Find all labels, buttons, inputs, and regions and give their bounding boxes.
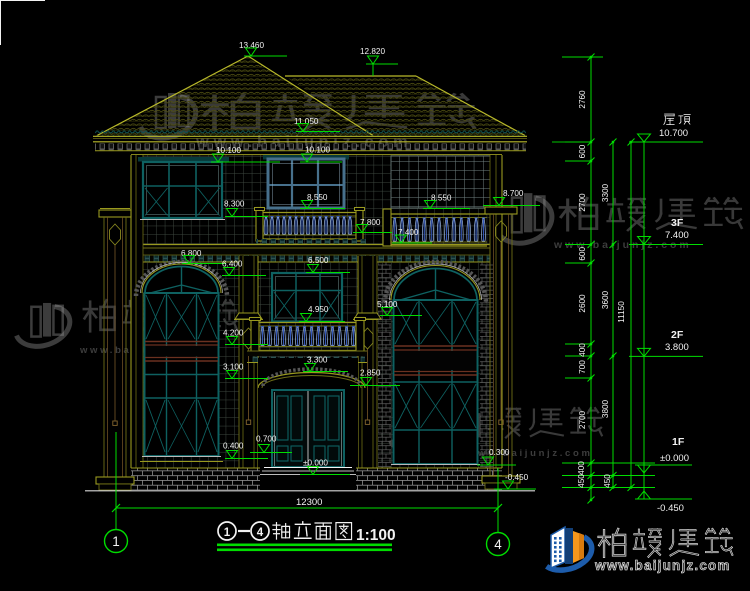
svg-text:3800: 3800 (601, 399, 610, 418)
svg-text:2760: 2760 (578, 90, 587, 109)
svg-text:2700: 2700 (578, 410, 587, 429)
svg-text:www.baijunjz.com: www.baijunjz.com (594, 558, 731, 573)
svg-text:4: 4 (257, 527, 264, 539)
svg-text:600: 600 (578, 144, 587, 158)
svg-text:450: 450 (603, 474, 612, 488)
svg-text:400: 400 (578, 343, 587, 357)
svg-text:2F: 2F (671, 329, 684, 341)
svg-text:13.460: 13.460 (239, 41, 264, 50)
svg-text:600: 600 (578, 247, 587, 261)
svg-text:1: 1 (224, 527, 231, 539)
svg-text:3F: 3F (671, 217, 684, 229)
svg-text:1:100: 1:100 (356, 527, 396, 544)
svg-text:7.400: 7.400 (398, 228, 419, 237)
svg-text:450: 450 (577, 474, 586, 488)
svg-text:3.800: 3.800 (665, 342, 689, 353)
svg-text:400: 400 (577, 461, 586, 475)
svg-text:8.700: 8.700 (503, 189, 524, 198)
svg-text:1F: 1F (672, 436, 685, 448)
svg-text:12.820: 12.820 (360, 47, 385, 56)
svg-text:1: 1 (112, 534, 120, 549)
svg-text:±0.000: ±0.000 (660, 453, 689, 464)
svg-text:4.950: 4.950 (308, 305, 329, 314)
svg-text:2700: 2700 (578, 193, 587, 212)
svg-text:0.400: 0.400 (223, 442, 244, 451)
svg-text:700: 700 (578, 360, 587, 374)
svg-text:8.550: 8.550 (431, 194, 452, 203)
svg-text:10.100: 10.100 (305, 146, 330, 155)
svg-text:3600: 3600 (601, 290, 610, 309)
svg-text:-0.450: -0.450 (657, 503, 684, 514)
svg-text:6.500: 6.500 (308, 256, 329, 265)
svg-text:3300: 3300 (601, 183, 610, 202)
svg-text:12300: 12300 (296, 497, 322, 508)
svg-text:11150: 11150 (617, 301, 626, 323)
svg-text:10.700: 10.700 (659, 128, 688, 139)
svg-text:2600: 2600 (578, 294, 587, 313)
svg-text:7.400: 7.400 (665, 230, 689, 241)
svg-text:4: 4 (494, 537, 502, 552)
svg-text:7.800: 7.800 (360, 218, 381, 227)
svg-text:8.300: 8.300 (224, 200, 245, 209)
svg-text:2.850: 2.850 (360, 369, 381, 378)
svg-text:0.700: 0.700 (256, 435, 277, 444)
svg-text:0.300: 0.300 (489, 448, 510, 457)
